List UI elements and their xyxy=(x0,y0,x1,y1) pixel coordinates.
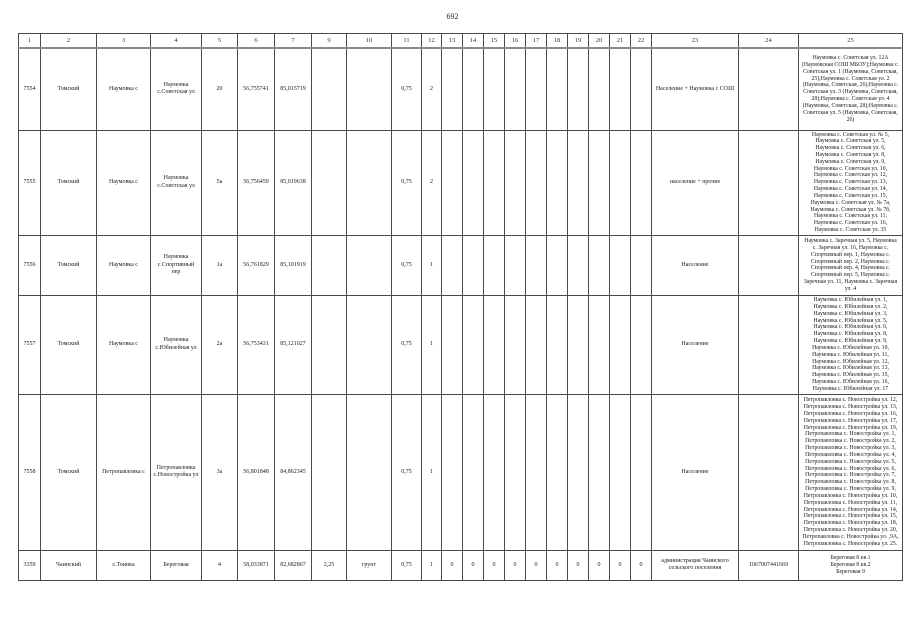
cell: 56,801848 xyxy=(238,394,275,550)
cell: Томский xyxy=(41,295,97,394)
cell: 2а xyxy=(202,295,238,394)
cell xyxy=(484,235,505,295)
cell xyxy=(568,295,589,394)
cell xyxy=(739,48,799,130)
cell: 0 xyxy=(568,550,589,580)
cell xyxy=(526,48,547,130)
cell xyxy=(505,394,526,550)
cell: 0,75 xyxy=(392,550,422,580)
cell xyxy=(463,394,484,550)
cell xyxy=(312,394,347,550)
cell: 7554 xyxy=(19,48,41,130)
registry-table: 1234567910111213141516171819202122232425… xyxy=(18,33,903,581)
cell xyxy=(739,130,799,235)
cell xyxy=(484,48,505,130)
cell xyxy=(631,48,652,130)
cell xyxy=(589,48,610,130)
cell-source-addresses: Наумовка с. Заречная ул. 5, Наумовка с. … xyxy=(799,235,903,295)
cell: 1а xyxy=(202,235,238,295)
column-header: 13 xyxy=(442,34,463,49)
cell xyxy=(463,130,484,235)
cell: 0,75 xyxy=(392,295,422,394)
cell: население + прочие xyxy=(652,130,739,235)
column-header: 14 xyxy=(463,34,484,49)
cell-source-addresses: Береговая 8 кв.1 Береговая 8 кв.2 Берего… xyxy=(799,550,903,580)
cell: 1 xyxy=(422,394,442,550)
cell xyxy=(547,130,568,235)
cell: 0 xyxy=(631,550,652,580)
column-header: 7 xyxy=(275,34,312,49)
table-row: 7558ТомскийПетропавловка сПетропавловка … xyxy=(19,394,903,550)
cell xyxy=(442,394,463,550)
cell: 0 xyxy=(505,550,526,580)
cell xyxy=(484,394,505,550)
cell: 0 xyxy=(442,550,463,580)
cell: 0 xyxy=(589,550,610,580)
cell-source-addresses: Наумовка с. Юбилейная ул. 1, Наумовка с.… xyxy=(799,295,903,394)
cell: Наумовка с xyxy=(97,130,151,235)
cell: 5а xyxy=(202,130,238,235)
cell xyxy=(484,130,505,235)
column-header: 23 xyxy=(652,34,739,49)
cell: Томский xyxy=(41,235,97,295)
column-header: 25 xyxy=(799,34,903,49)
column-header: 18 xyxy=(547,34,568,49)
cell: 0,75 xyxy=(392,394,422,550)
cell xyxy=(568,48,589,130)
cell: 84,862345 xyxy=(275,394,312,550)
cell: 85,019638 xyxy=(275,130,312,235)
cell: 1 xyxy=(422,295,442,394)
cell: Наумовка с.Советская ул xyxy=(151,48,202,130)
cell: 0 xyxy=(463,550,484,580)
cell-source-addresses: Наумовка с. Советская ул. 12А (Наумовска… xyxy=(799,48,903,130)
cell: Население xyxy=(652,235,739,295)
cell xyxy=(484,295,505,394)
cell xyxy=(568,235,589,295)
cell xyxy=(568,130,589,235)
cell xyxy=(312,235,347,295)
cell: 56,755741 xyxy=(238,48,275,130)
cell xyxy=(589,295,610,394)
column-header: 12 xyxy=(422,34,442,49)
column-header: 19 xyxy=(568,34,589,49)
cell xyxy=(547,48,568,130)
page-number: 692 xyxy=(0,12,905,21)
cell: 0,75 xyxy=(392,48,422,130)
cell xyxy=(547,235,568,295)
cell: 1 xyxy=(422,550,442,580)
cell: 7558 xyxy=(19,394,41,550)
cell xyxy=(631,394,652,550)
column-header: 6 xyxy=(238,34,275,49)
cell xyxy=(547,394,568,550)
cell xyxy=(739,295,799,394)
cell: Население xyxy=(652,394,739,550)
cell: 0 xyxy=(547,550,568,580)
cell xyxy=(610,295,631,394)
cell xyxy=(463,295,484,394)
cell: 0 xyxy=(526,550,547,580)
cell: 3359 xyxy=(19,550,41,580)
cell: 2 xyxy=(422,130,442,235)
cell: 56,761829 xyxy=(238,235,275,295)
cell: Петропавловка с xyxy=(97,394,151,550)
registry-table-container: 1234567910111213141516171819202122232425… xyxy=(18,33,891,581)
cell: 56,756459 xyxy=(238,130,275,235)
cell: 58,033871 xyxy=(238,550,275,580)
cell: 0 xyxy=(610,550,631,580)
cell xyxy=(610,130,631,235)
cell: 82,682867 xyxy=(275,550,312,580)
cell: Наумовка с.Юбилейная ул xyxy=(151,295,202,394)
column-header: 17 xyxy=(526,34,547,49)
cell-source-addresses: Петропавловка с. Новостройка ул. 12, Пет… xyxy=(799,394,903,550)
cell xyxy=(505,295,526,394)
table-header-row: 1234567910111213141516171819202122232425 xyxy=(19,34,903,49)
column-header: 3 xyxy=(97,34,151,49)
cell xyxy=(610,48,631,130)
cell: Томский xyxy=(41,394,97,550)
cell xyxy=(526,295,547,394)
column-header: 11 xyxy=(392,34,422,49)
cell xyxy=(631,295,652,394)
cell: 0,75 xyxy=(392,130,422,235)
column-header: 9 xyxy=(312,34,347,49)
cell xyxy=(347,130,392,235)
cell: Наумовка с xyxy=(97,295,151,394)
cell xyxy=(442,48,463,130)
cell xyxy=(547,295,568,394)
cell xyxy=(463,48,484,130)
cell: 85,101919 xyxy=(275,235,312,295)
table-row: 7557ТомскийНаумовка сНаумовка с.Юбилейна… xyxy=(19,295,903,394)
cell xyxy=(739,394,799,550)
cell xyxy=(347,295,392,394)
cell xyxy=(568,394,589,550)
cell xyxy=(589,130,610,235)
cell xyxy=(442,235,463,295)
cell xyxy=(589,394,610,550)
column-header: 22 xyxy=(631,34,652,49)
cell xyxy=(526,130,547,235)
cell xyxy=(589,235,610,295)
cell: Наумовка с xyxy=(97,48,151,130)
cell: администрация Чаинского сельского поселе… xyxy=(652,550,739,580)
cell: 7555 xyxy=(19,130,41,235)
cell xyxy=(347,394,392,550)
table-row: 7555ТомскийНаумовка сНаумовка с.Советска… xyxy=(19,130,903,235)
table-row: 7554ТомскийНаумовка сНаумовка с.Советска… xyxy=(19,48,903,130)
cell: 56,753431 xyxy=(238,295,275,394)
cell xyxy=(312,48,347,130)
cell xyxy=(347,48,392,130)
cell: Наумовка с.Спортивный пер xyxy=(151,235,202,295)
cell xyxy=(505,235,526,295)
cell: 0 xyxy=(484,550,505,580)
cell xyxy=(312,295,347,394)
table-row: 3359Чаинскийс.ТоинкаБереговая458,0338718… xyxy=(19,550,903,580)
cell: 0,75 xyxy=(392,235,422,295)
cell: с.Тоинка xyxy=(97,550,151,580)
cell xyxy=(526,394,547,550)
cell xyxy=(312,130,347,235)
column-header: 15 xyxy=(484,34,505,49)
cell: 2 xyxy=(422,48,442,130)
column-header: 21 xyxy=(610,34,631,49)
cell xyxy=(631,235,652,295)
cell: 1067007441669 xyxy=(739,550,799,580)
cell-source-addresses: Наумовка с. Советская ул. № 5, Наумовка … xyxy=(799,130,903,235)
column-header: 24 xyxy=(739,34,799,49)
cell: Наумовка с.Советская ул xyxy=(151,130,202,235)
column-header: 5 xyxy=(202,34,238,49)
cell xyxy=(347,235,392,295)
cell: Население xyxy=(652,295,739,394)
cell xyxy=(463,235,484,295)
column-header: 1 xyxy=(19,34,41,49)
cell xyxy=(739,235,799,295)
cell xyxy=(442,295,463,394)
cell xyxy=(610,394,631,550)
cell xyxy=(526,235,547,295)
cell xyxy=(505,48,526,130)
table-body: 7554ТомскийНаумовка сНаумовка с.Советска… xyxy=(19,48,903,580)
column-header: 16 xyxy=(505,34,526,49)
cell xyxy=(610,235,631,295)
cell: грунт xyxy=(347,550,392,580)
column-header: 2 xyxy=(41,34,97,49)
cell: Население + Наумовка с СОШ xyxy=(652,48,739,130)
cell: 85,121027 xyxy=(275,295,312,394)
cell xyxy=(505,130,526,235)
cell: 4 xyxy=(202,550,238,580)
column-header: 20 xyxy=(589,34,610,49)
table-row: 7556ТомскийНаумовка сНаумовка с.Спортивн… xyxy=(19,235,903,295)
cell xyxy=(631,130,652,235)
cell: 7557 xyxy=(19,295,41,394)
cell: 85,015719 xyxy=(275,48,312,130)
cell: Береговая xyxy=(151,550,202,580)
cell: Томский xyxy=(41,130,97,235)
cell: Наумовка с xyxy=(97,235,151,295)
cell: 7556 xyxy=(19,235,41,295)
cell xyxy=(442,130,463,235)
column-header: 4 xyxy=(151,34,202,49)
cell: Чаинский xyxy=(41,550,97,580)
cell: 1 xyxy=(422,235,442,295)
cell: 3а xyxy=(202,394,238,550)
cell: Томский xyxy=(41,48,97,130)
column-header: 10 xyxy=(347,34,392,49)
cell: 2,25 xyxy=(312,550,347,580)
cell: 20 xyxy=(202,48,238,130)
cell: Петропавловка с.Новостройка ул xyxy=(151,394,202,550)
